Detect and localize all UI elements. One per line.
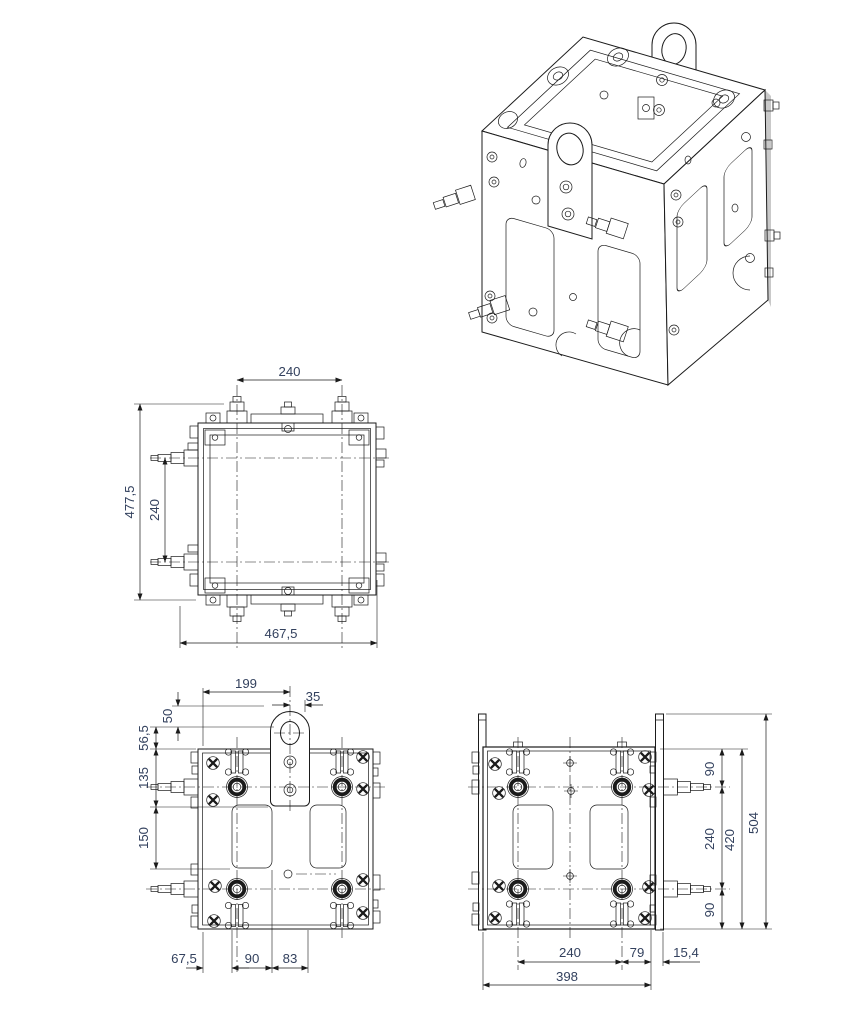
side-view: 90 240 90 420 504 240 79 15,4 398 <box>468 714 772 990</box>
bottom-edge-couplers <box>206 587 368 622</box>
drawing-sheet: 240 477,5 240 467,5 199 <box>0 0 841 1028</box>
dim-79: 79 <box>630 945 645 960</box>
technical-drawing-canvas: 240 477,5 240 467,5 199 <box>0 0 841 1028</box>
front-lifting-lug <box>548 123 592 239</box>
isometric-view <box>432 23 780 385</box>
dim-150: 150 <box>136 827 151 849</box>
side-plate-right <box>656 714 664 930</box>
top-view-dimensions: 240 477,5 240 467,5 <box>122 364 377 648</box>
center-hole <box>284 870 292 878</box>
window-slot <box>310 805 346 868</box>
front-view: 199 35 50 56,5 135 150 67,5 90 83 <box>136 676 388 973</box>
dim-15-4: 15,4 <box>673 945 699 960</box>
dim-90-bottom: 90 <box>702 903 717 918</box>
window-slot <box>232 805 272 868</box>
dim-top-240: 240 <box>278 364 300 379</box>
dim-35: 35 <box>306 689 321 704</box>
iso-pin <box>432 185 476 212</box>
dim-240-mid: 240 <box>702 828 717 850</box>
dim-83: 83 <box>283 951 298 966</box>
dim-56-5: 56,5 <box>136 725 151 751</box>
centerlines <box>150 385 392 648</box>
dim-504: 504 <box>746 812 761 834</box>
dim-135: 135 <box>136 767 151 789</box>
top-edge-couplers <box>206 397 368 433</box>
corner-blocks <box>205 430 369 593</box>
dim-240-bottom: 240 <box>559 945 581 960</box>
dim-67-5: 67,5 <box>171 951 197 966</box>
dim-left-477-5: 477,5 <box>122 485 137 518</box>
dim-bottom-467-5: 467,5 <box>264 626 297 641</box>
dim-398: 398 <box>556 969 578 984</box>
dim-90: 90 <box>245 951 260 966</box>
dim-199: 199 <box>235 676 257 691</box>
dim-90-top: 90 <box>702 762 717 777</box>
top-view: 240 477,5 240 467,5 <box>122 364 392 648</box>
dim-left-240: 240 <box>147 499 162 521</box>
main-plate <box>483 747 655 929</box>
dim-420: 420 <box>722 829 737 851</box>
dim-50: 50 <box>160 709 175 724</box>
